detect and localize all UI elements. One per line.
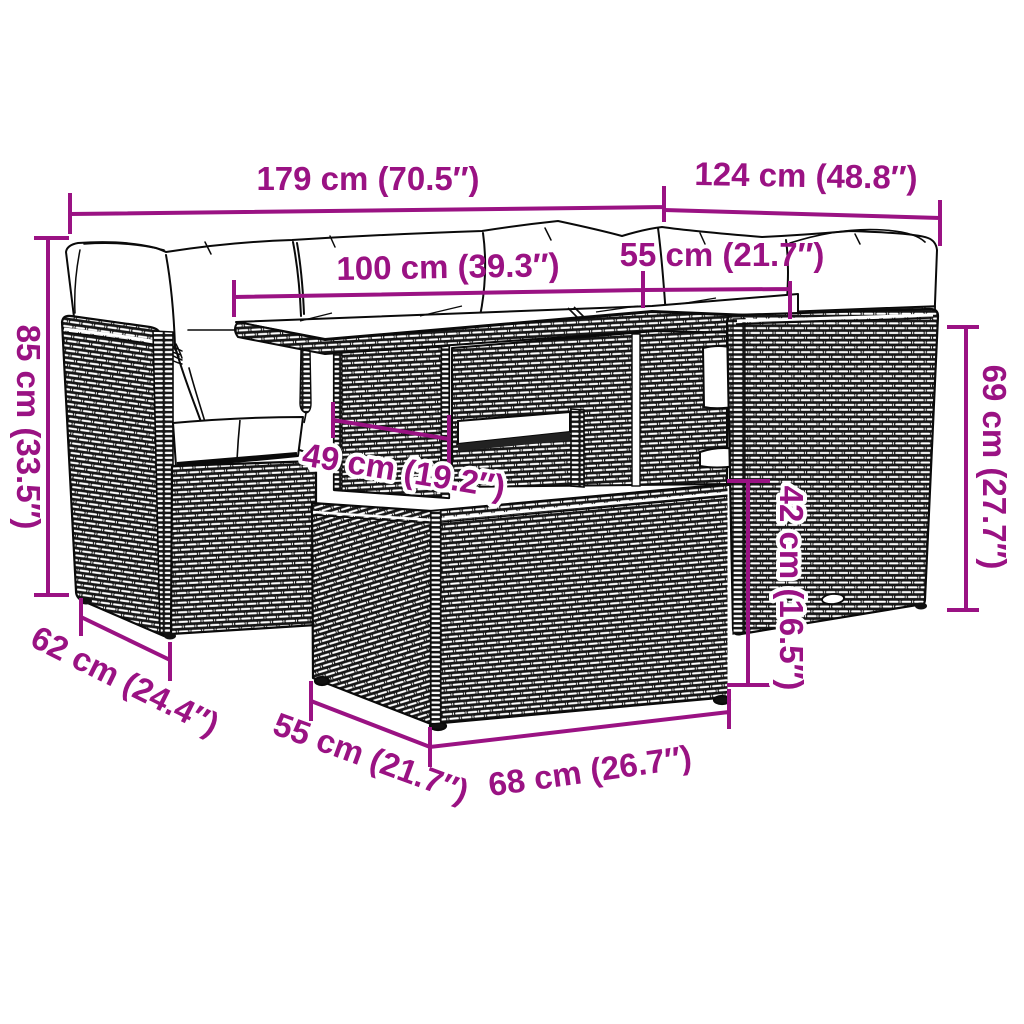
svg-text:100 cm (39.3″): 100 cm (39.3″) <box>336 246 560 287</box>
svg-text:55 cm (21.7″): 55 cm (21.7″) <box>620 236 825 273</box>
svg-text:124 cm (48.8″): 124 cm (48.8″) <box>694 155 918 196</box>
svg-text:179 cm (70.5″): 179 cm (70.5″) <box>256 160 479 197</box>
svg-text:85 cm (33.5″): 85 cm (33.5″) <box>10 325 47 530</box>
svg-text:42 cm (16.5″): 42 cm (16.5″) <box>773 486 810 691</box>
svg-text:69 cm (27.7″): 69 cm (27.7″) <box>976 365 1013 570</box>
